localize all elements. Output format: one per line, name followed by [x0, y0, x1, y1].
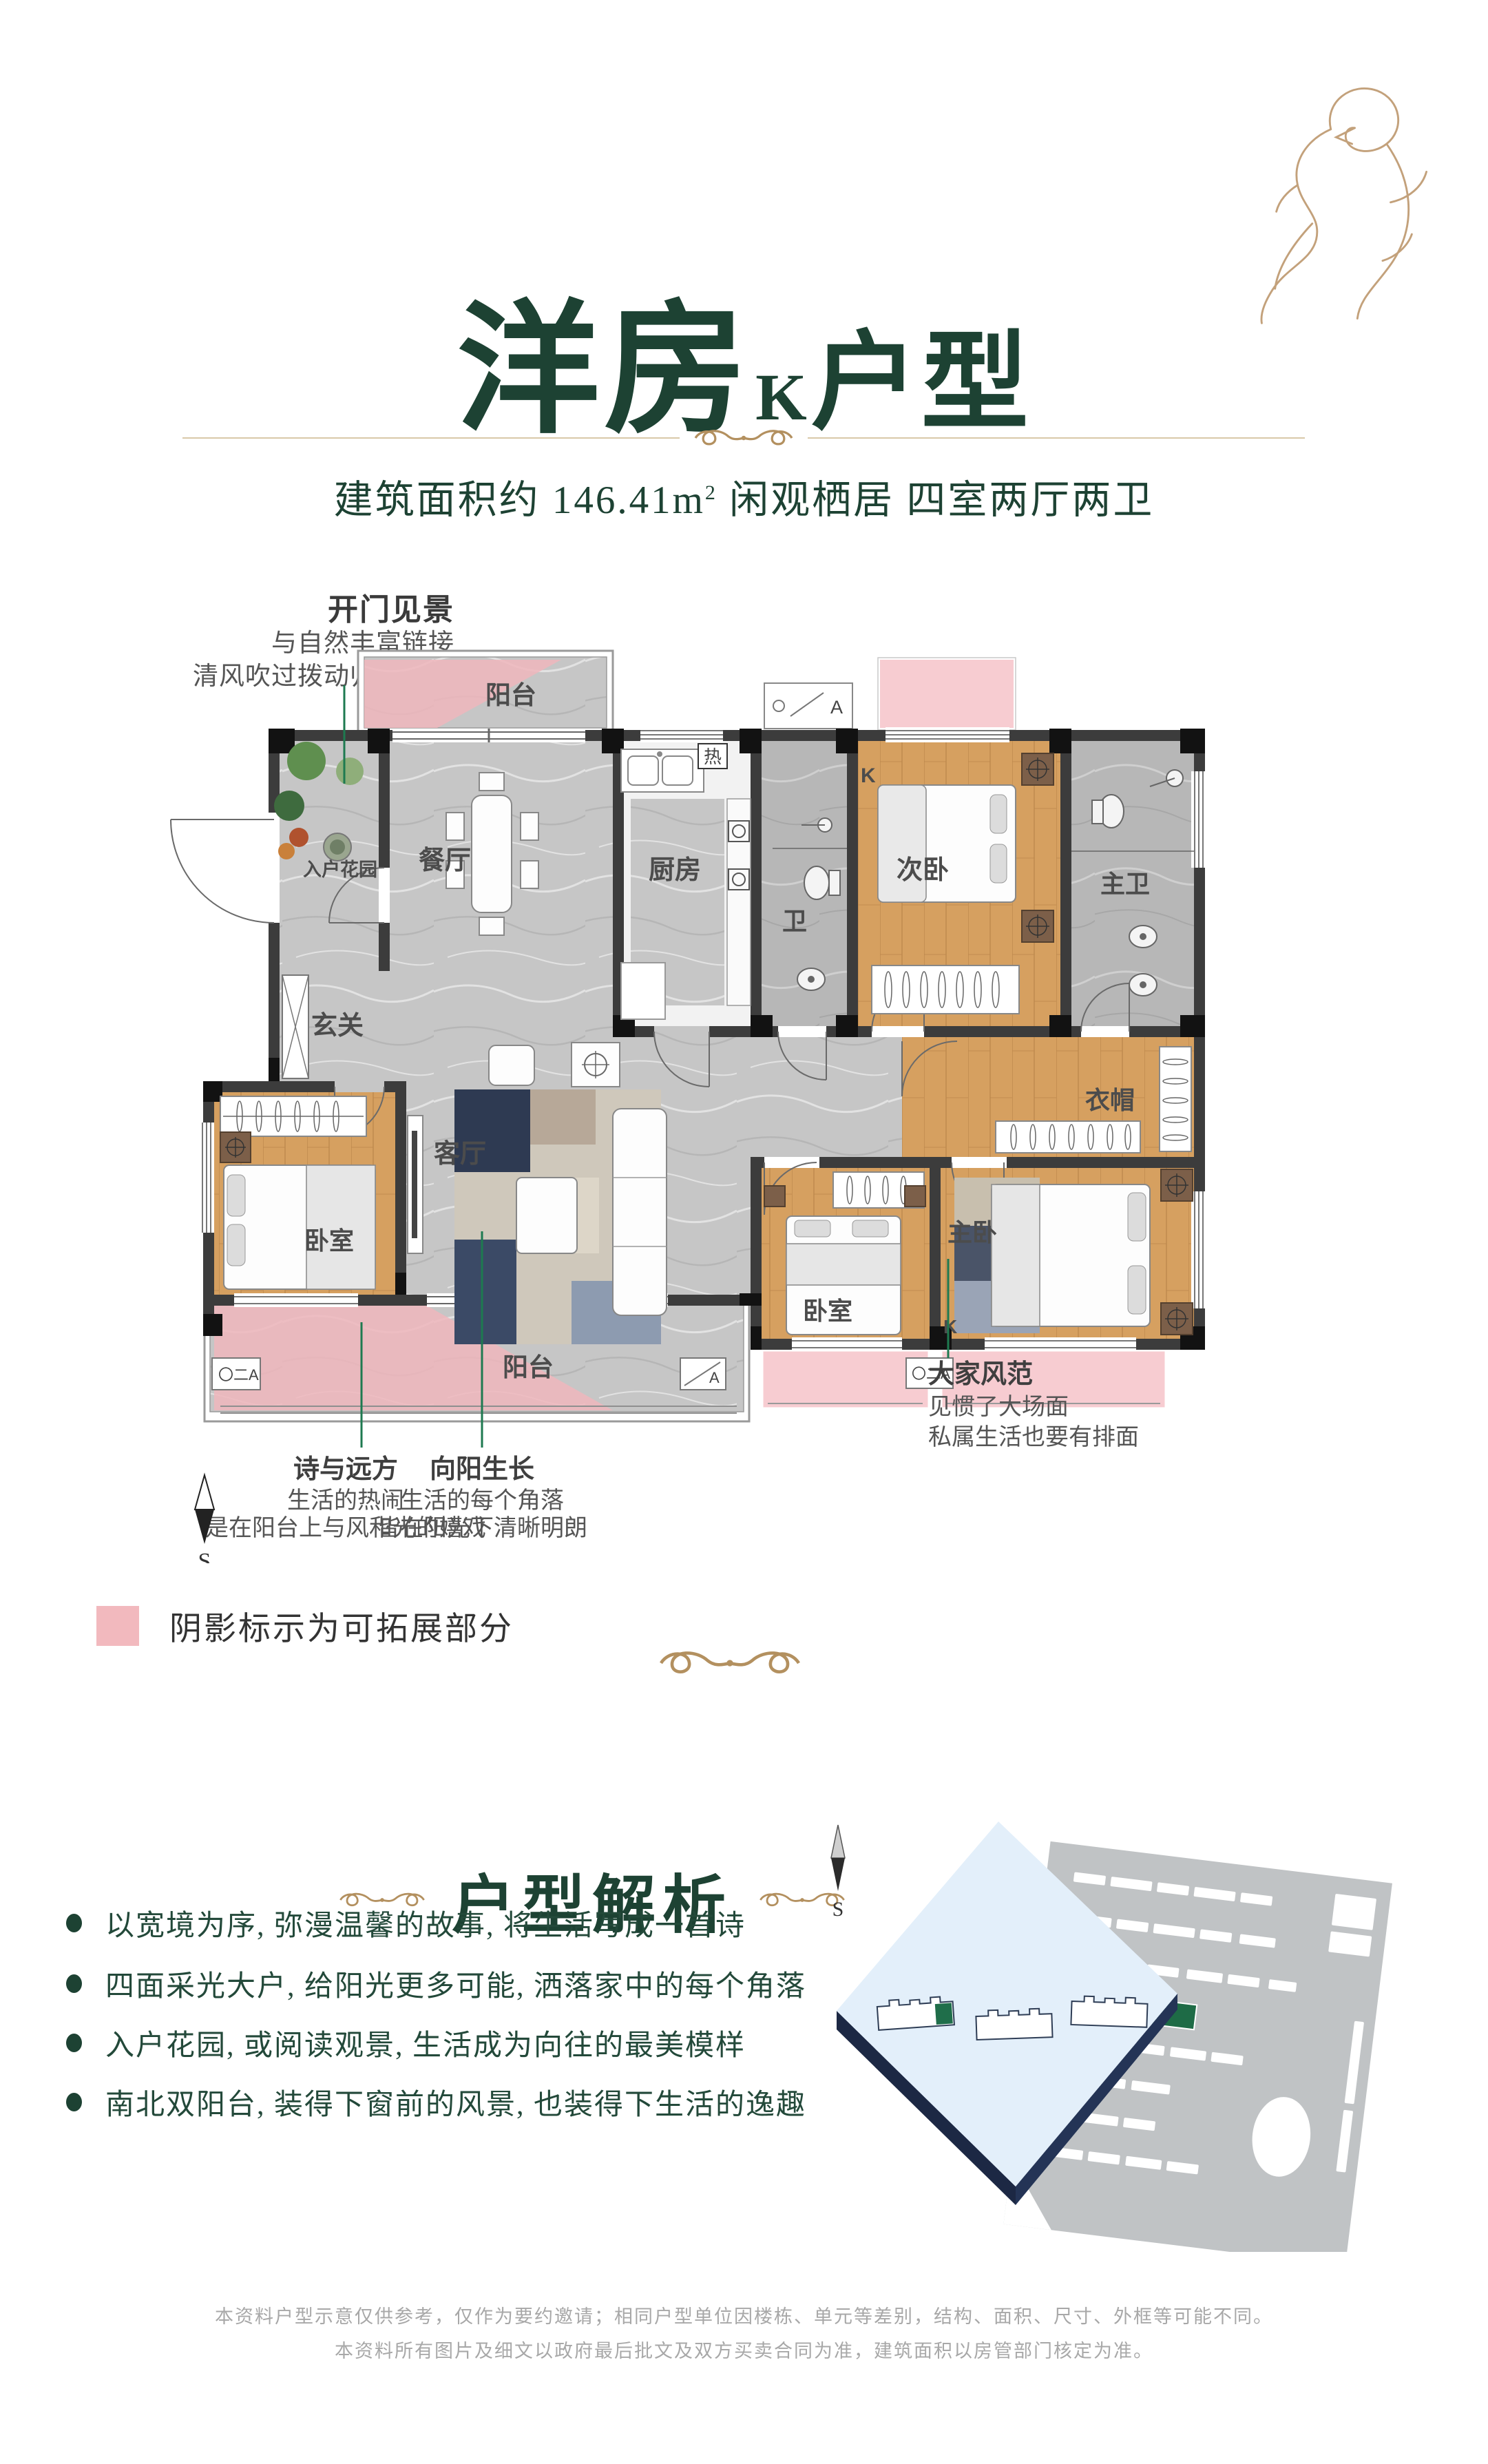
subtitle-area: 建筑面积约 146.41m: [334, 479, 705, 522]
room-label-bath: 卫: [782, 907, 807, 935]
foyer-closet-icon: [282, 975, 308, 1078]
north-balcony: 阳台: [358, 651, 613, 733]
footer-disclaimer-1: 本资料户型示意仅供参考，仅作为要约邀请；相同户型单位因楼栋、单元等差别，结构、面…: [0, 2301, 1488, 2328]
room-label-bedroom-mid: 卧室: [803, 1297, 852, 1325]
legend-text: 阴影标示为可拓展部分: [169, 1602, 514, 1649]
bedroom-mid-south-window: [792, 1337, 902, 1351]
subtitle: 建筑面积约 146.41m2 闲观栖居 四室两厅两卫: [0, 468, 1488, 525]
compass-icon: S: [195, 1475, 214, 1563]
bullet-dot: [66, 1914, 82, 1932]
svg-text:生活的热闹: 生活的热闹: [287, 1487, 404, 1514]
room-label-master-bedroom: 主卧: [947, 1218, 997, 1246]
room-label-kitchen: 厨房: [649, 856, 701, 885]
bedroom-west-furniture: [220, 1096, 375, 1289]
legend-pink-swatch: [96, 1606, 139, 1646]
room-label-living: 客厅: [434, 1139, 486, 1169]
svg-text:〇二A: 〇二A: [218, 1366, 259, 1384]
k-tag-south: K: [943, 1316, 957, 1337]
svg-text:大家风范: 大家风范: [928, 1360, 1033, 1389]
room-label-entry-garden: 入户花园: [303, 859, 377, 880]
annotation-sunny: 向阳生长 生活的每个角落 皆在阳光下清晰明朗: [377, 1455, 587, 1541]
master-bedroom-east-window: [1191, 1191, 1206, 1308]
svg-text:诗与远方: 诗与远方: [293, 1455, 398, 1484]
divider-line-right: [808, 437, 1305, 439]
balcony-north-door: [392, 729, 585, 742]
window-code-box-left: 〇二A: [212, 1358, 260, 1390]
room-label-dining: 餐厅: [419, 846, 471, 875]
section-flourish-icon: [654, 1646, 806, 1680]
master-bath-east-window: [1191, 771, 1206, 868]
svg-text:皆在阳光下清晰明朗: 皆在阳光下清晰明朗: [377, 1515, 587, 1541]
north-pink-platform: [878, 658, 1016, 730]
room-label-south-balcony: 阳台: [503, 1353, 554, 1381]
room-label-bedroom-west: 卧室: [304, 1226, 354, 1255]
subtitle-sup: 2: [705, 481, 717, 504]
master-bedroom-south-window: [985, 1337, 1136, 1351]
svg-text:热: 热: [704, 746, 722, 767]
analysis-bullet-4: 南北双阳台, 装得下窗前的风景, 也装得下生活的逸趣: [66, 2081, 806, 2123]
bullet-dot: [66, 1974, 82, 1993]
bullet-dot: [66, 2093, 82, 2111]
room-label-foyer: 玄关: [311, 1012, 364, 1041]
svg-text:生活的每个角落: 生活的每个角落: [400, 1487, 564, 1514]
poster-page: { "header": { "title_main": "洋房", "title…: [0, 0, 1488, 2464]
subtitle-rest: 闲观栖居 四室两厅两卫: [717, 479, 1155, 522]
analysis-bullet-1: 以宽境为序, 弥漫温馨的故事, 将生活写成一首诗: [66, 1902, 746, 1944]
room-label-cloakroom: 衣帽: [1085, 1086, 1135, 1114]
svg-text:A: A: [709, 1369, 720, 1386]
svg-text:向阳生长: 向阳生长: [430, 1455, 534, 1484]
title-divider: [182, 426, 1305, 450]
site-plan: S: [788, 1797, 1408, 2252]
window-code-box-right: A: [680, 1358, 726, 1390]
room-label-master-bath: 主卫: [1100, 870, 1150, 898]
room-label-north-balcony: 阳台: [485, 681, 536, 709]
second-bedroom-north-window: [886, 727, 1009, 742]
svg-text:私属生活也要有排面: 私属生活也要有排面: [928, 1424, 1139, 1450]
window-tag-a: A: [830, 697, 843, 718]
site-compass-icon: S: [831, 1825, 845, 1921]
bedroom-west-window: [199, 1123, 214, 1233]
bullet-dot: [66, 2034, 82, 2052]
footer-disclaimer-2: 本资料所有图片及细文以政府最后批文及双方买卖合同为准，建筑面积以房管部门核定为准…: [0, 2336, 1488, 2363]
heater-tag: 热: [698, 744, 727, 769]
svg-text:见惯了大场面: 见惯了大场面: [928, 1394, 1069, 1420]
room-label-second-bedroom: 次卧: [897, 856, 949, 885]
title-grade: K: [755, 359, 807, 435]
bedroom-west-balcony-window: [234, 1293, 358, 1307]
divider-flourish-icon: [692, 426, 795, 450]
analysis-bullet-3: 入户花园, 或阅读观景, 生活成为向往的最美模样: [66, 2022, 746, 2064]
annotation-open-view-title: 开门见景: [165, 594, 454, 627]
k-tag-north: K: [861, 764, 876, 787]
divider-line-left: [182, 437, 680, 439]
equipment-platform: A: [764, 683, 852, 729]
analysis-bullet-2: 四面采光大户, 给阳光更多可能, 洒落家中的每个角落: [66, 1963, 806, 2005]
floor-plan: 阳台 A 阳台 〇二A A 〇二A: [131, 640, 1233, 1563]
kitchen-north-window: [640, 727, 723, 742]
legend: 阴影标示为可拓展部分: [96, 1602, 514, 1649]
compass-south-label: S: [198, 1549, 211, 1563]
svg-text:S: S: [832, 1898, 844, 1921]
